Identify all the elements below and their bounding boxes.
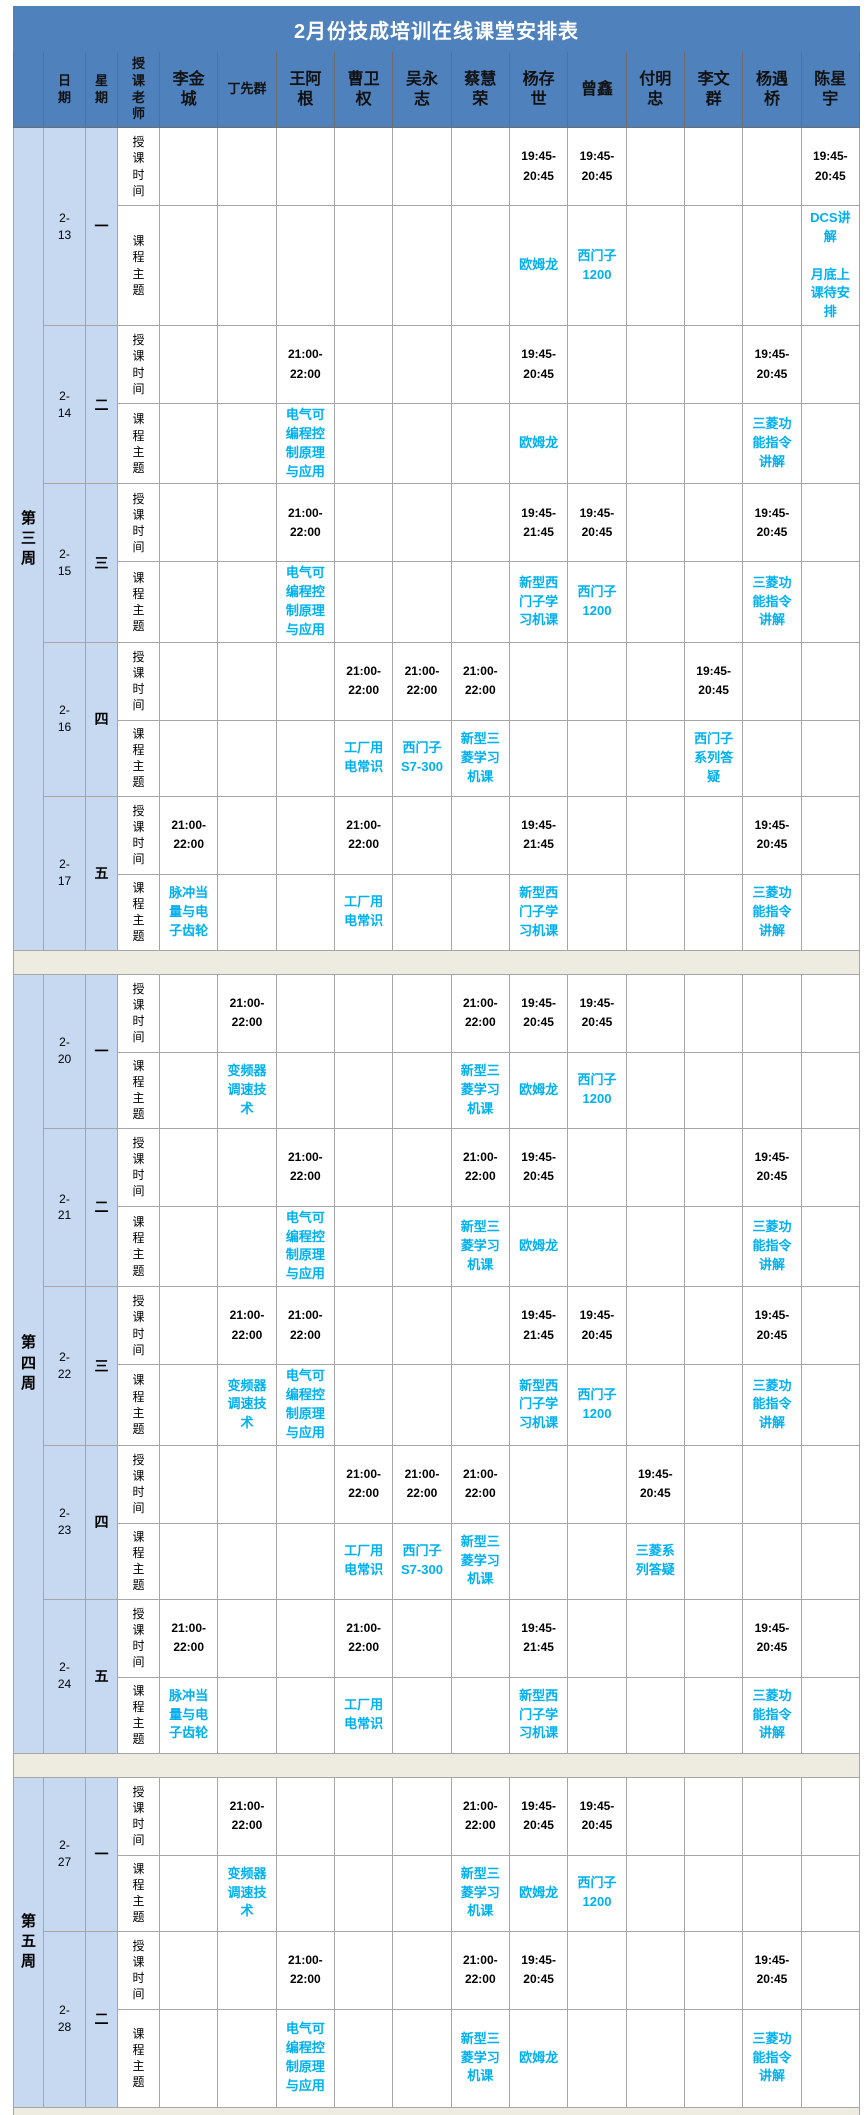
time-row-label: 授课时间 [118, 326, 160, 404]
topic-row-label: 课程主题 [118, 404, 160, 484]
time-cell [218, 1599, 276, 1677]
date-cell: 2-22 [44, 1287, 86, 1445]
time-cell [743, 974, 801, 1052]
topic-cell [218, 1677, 276, 1753]
topic-row: 课程主题电气可编程控制原理与应用新型三菱学习机课欧姆龙三菱功能指令讲解 [14, 1206, 860, 1286]
time-row: 2-15三授课时间21:00-22:0019:45-21:4519:45-20:… [14, 484, 860, 562]
time-cell: 19:45-20:45 [801, 128, 859, 206]
time-cell [684, 1599, 742, 1677]
topic-cell: 新型西门子学习机课 [509, 562, 567, 642]
time-cell [684, 128, 742, 206]
topic-cell [626, 1677, 684, 1753]
date-cell: 2-15 [44, 484, 86, 642]
time-cell: 21:00-22:00 [276, 1287, 334, 1365]
time-row-label: 授课时间 [118, 1445, 160, 1523]
topic-cell [334, 404, 392, 484]
topic-row: 课程主题电气可编程控制原理与应用欧姆龙三菱功能指令讲解 [14, 404, 860, 484]
time-cell: 21:00-22:00 [451, 1128, 509, 1206]
topic-cell [684, 206, 742, 326]
topic-cell [509, 1523, 567, 1599]
time-cell [801, 796, 859, 874]
topic-cell [801, 1523, 859, 1599]
time-row: 第三周2-13一授课时间19:45-20:4519:45-20:4519:45-… [14, 128, 860, 206]
topic-cell [334, 1206, 392, 1286]
teacher-header: 付明忠 [626, 52, 684, 128]
topic-cell [684, 2009, 742, 2107]
time-cell: 19:45-20:45 [509, 1931, 567, 2009]
topic-cell [393, 1206, 451, 1286]
topic-cell [276, 874, 334, 950]
topic-row: 课程主题脉冲当量与电子齿轮工厂用电常识新型西门子学习机课三菱功能指令讲解 [14, 874, 860, 950]
time-cell: 21:00-22:00 [276, 484, 334, 562]
time-cell [743, 1445, 801, 1523]
topic-row-label: 课程主题 [118, 1365, 160, 1445]
time-row-label: 授课时间 [118, 1599, 160, 1677]
topic-cell [568, 1523, 626, 1599]
time-cell [451, 484, 509, 562]
time-row: 2-14二授课时间21:00-22:0019:45-20:4519:45-20:… [14, 326, 860, 404]
topic-row-label: 课程主题 [118, 1855, 160, 1931]
topic-cell: 电气可编程控制原理与应用 [276, 1365, 334, 1445]
time-cell [393, 1777, 451, 1855]
time-cell [276, 128, 334, 206]
time-cell: 19:45-20:45 [743, 1931, 801, 2009]
weekday-cell: 四 [86, 642, 118, 796]
topic-row: 课程主题电气可编程控制原理与应用新型西门子学习机课西门子1200三菱功能指令讲解 [14, 562, 860, 642]
topic-cell [218, 720, 276, 796]
week-separator [14, 1753, 860, 1777]
time-cell: 21:00-22:00 [218, 974, 276, 1052]
time-row-label: 授课时间 [118, 1777, 160, 1855]
time-cell [393, 1287, 451, 1365]
time-cell [451, 128, 509, 206]
date-cell: 2-20 [44, 974, 86, 1128]
topic-cell: 工厂用电常识 [334, 720, 392, 796]
topic-cell [218, 874, 276, 950]
topic-cell [160, 720, 218, 796]
date-cell: 2-14 [44, 326, 86, 484]
time-cell [393, 128, 451, 206]
time-cell: 19:45-20:45 [509, 1128, 567, 1206]
time-cell: 19:45-20:45 [626, 1445, 684, 1523]
topic-row: 课程主题变频器调速技术新型三菱学习机课欧姆龙西门子1200 [14, 1052, 860, 1128]
time-row: 2-28二授课时间21:00-22:0021:00-22:0019:45-20:… [14, 1931, 860, 2009]
time-cell: 19:45-20:45 [743, 484, 801, 562]
time-cell: 21:00-22:00 [393, 642, 451, 720]
topic-cell [276, 1523, 334, 1599]
teacher-label-header: 授课老师 [118, 52, 160, 128]
topic-row-label: 课程主题 [118, 2009, 160, 2107]
topic-cell [626, 1052, 684, 1128]
time-cell: 21:00-22:00 [160, 1599, 218, 1677]
topic-cell [393, 874, 451, 950]
topic-cell: 三菱功能指令讲解 [743, 404, 801, 484]
topic-cell: 电气可编程控制原理与应用 [276, 1206, 334, 1286]
date-cell: 2-27 [44, 1777, 86, 1931]
topic-cell: 新型三菱学习机课 [451, 1206, 509, 1286]
topic-cell: 西门子1200 [568, 562, 626, 642]
topic-cell [743, 1052, 801, 1128]
time-cell [509, 1445, 567, 1523]
topic-cell: 变频器调速技术 [218, 1855, 276, 1931]
topic-row: 课程主题工厂用电常识西门子S7-300新型三菱学习机课西门子系列答疑 [14, 720, 860, 796]
weekday-cell: 三 [86, 484, 118, 642]
schedule-table: 2月份技成培训在线课堂安排表 日期 星期 授课老师 李金城丁先群王阿根曹卫权吴永… [13, 6, 860, 2115]
time-cell [334, 1287, 392, 1365]
time-cell [393, 1599, 451, 1677]
time-cell: 21:00-22:00 [218, 1777, 276, 1855]
time-cell [218, 128, 276, 206]
time-cell: 19:45-20:45 [568, 1777, 626, 1855]
topic-cell [684, 1365, 742, 1445]
teacher-header: 曾鑫 [568, 52, 626, 128]
topic-cell [276, 1677, 334, 1753]
topic-cell [684, 1052, 742, 1128]
time-cell: 19:45-21:45 [509, 1287, 567, 1365]
topic-cell: 西门子1200 [568, 1052, 626, 1128]
time-cell: 19:45-20:45 [568, 974, 626, 1052]
topic-cell: 工厂用电常识 [334, 874, 392, 950]
time-cell [801, 326, 859, 404]
time-cell: 19:45-21:45 [509, 484, 567, 562]
teacher-header: 杨遇桥 [743, 52, 801, 128]
time-cell [801, 1287, 859, 1365]
time-cell [801, 1599, 859, 1677]
time-cell [626, 1287, 684, 1365]
time-row-label: 授课时间 [118, 1287, 160, 1365]
time-cell: 19:45-20:45 [684, 642, 742, 720]
time-cell [626, 1931, 684, 2009]
topic-cell: 西门子S7-300 [393, 1523, 451, 1599]
topic-row-label: 课程主题 [118, 874, 160, 950]
time-cell: 19:45-21:45 [509, 1599, 567, 1677]
topic-cell: 脉冲当量与电子齿轮 [160, 1677, 218, 1753]
topic-cell [801, 404, 859, 484]
teacher-header: 吴永志 [393, 52, 451, 128]
topic-cell [276, 206, 334, 326]
topic-cell: 西门子系列答疑 [684, 720, 742, 796]
time-cell [801, 1128, 859, 1206]
topic-cell [684, 1523, 742, 1599]
topic-cell [568, 404, 626, 484]
topic-cell: 欧姆龙 [509, 1855, 567, 1931]
time-cell [160, 1287, 218, 1365]
time-cell [568, 1931, 626, 2009]
time-row: 2-23四授课时间21:00-22:0021:00-22:0021:00-22:… [14, 1445, 860, 1523]
time-cell [451, 326, 509, 404]
topic-cell: 三菱系列答疑 [626, 1523, 684, 1599]
date-cell: 2-13 [44, 128, 86, 326]
time-cell [684, 796, 742, 874]
time-cell [568, 1445, 626, 1523]
topic-cell [451, 1677, 509, 1753]
time-cell [393, 326, 451, 404]
topic-cell: 三菱功能指令讲解 [743, 874, 801, 950]
page-title: 2月份技成培训在线课堂安排表 [14, 7, 860, 52]
time-cell [626, 1128, 684, 1206]
topic-cell: 脉冲当量与电子齿轮 [160, 874, 218, 950]
topic-cell [218, 1523, 276, 1599]
time-cell: 21:00-22:00 [334, 1445, 392, 1523]
week-separator-row [14, 950, 860, 974]
time-cell [451, 1599, 509, 1677]
time-cell: 19:45-20:45 [743, 1128, 801, 1206]
topic-cell [334, 206, 392, 326]
time-cell: 21:00-22:00 [276, 1128, 334, 1206]
topic-cell [160, 1206, 218, 1286]
topic-cell [684, 1855, 742, 1931]
time-cell [626, 326, 684, 404]
topic-cell [626, 562, 684, 642]
topic-cell: 新型西门子学习机课 [509, 1365, 567, 1445]
weekday-column-header: 星期 [86, 52, 118, 128]
header-row: 日期 星期 授课老师 李金城丁先群王阿根曹卫权吴永志蔡慧荣杨存世曾鑫付明忠李文群… [14, 52, 860, 128]
topic-cell: 三菱功能指令讲解 [743, 1677, 801, 1753]
time-row-label: 授课时间 [118, 1128, 160, 1206]
weekday-cell: 一 [86, 974, 118, 1128]
topic-cell: 欧姆龙 [509, 1206, 567, 1286]
topic-cell [334, 1365, 392, 1445]
topic-cell [218, 562, 276, 642]
time-row: 2-24五授课时间21:00-22:0021:00-22:0019:45-21:… [14, 1599, 860, 1677]
time-cell [393, 1931, 451, 2009]
date-cell: 2-21 [44, 1128, 86, 1286]
time-cell [276, 974, 334, 1052]
topic-cell [160, 206, 218, 326]
time-cell: 21:00-22:00 [451, 1777, 509, 1855]
time-cell [218, 1445, 276, 1523]
topic-cell [626, 720, 684, 796]
topic-cell [626, 1365, 684, 1445]
topic-cell: 电气可编程控制原理与应用 [276, 562, 334, 642]
time-cell [218, 1128, 276, 1206]
time-cell: 21:00-22:00 [160, 796, 218, 874]
time-cell [801, 1445, 859, 1523]
time-cell [334, 1128, 392, 1206]
topic-cell [160, 404, 218, 484]
time-cell [218, 642, 276, 720]
topic-cell: 欧姆龙 [509, 404, 567, 484]
topic-cell [393, 1677, 451, 1753]
topic-row-label: 课程主题 [118, 206, 160, 326]
time-cell: 21:00-22:00 [451, 1445, 509, 1523]
time-cell [160, 1128, 218, 1206]
time-cell [626, 484, 684, 562]
time-cell: 21:00-22:00 [334, 642, 392, 720]
time-cell [451, 796, 509, 874]
time-cell: 21:00-22:00 [451, 974, 509, 1052]
time-cell [801, 484, 859, 562]
topic-cell [743, 1523, 801, 1599]
topic-cell [801, 2009, 859, 2107]
topic-cell: 工厂用电常识 [334, 1677, 392, 1753]
time-cell [276, 1777, 334, 1855]
topic-row: 课程主题脉冲当量与电子齿轮工厂用电常识新型西门子学习机课三菱功能指令讲解 [14, 1677, 860, 1753]
date-cell: 2-17 [44, 796, 86, 950]
teacher-header: 曹卫权 [334, 52, 392, 128]
topic-cell [160, 1855, 218, 1931]
teacher-header: 王阿根 [276, 52, 334, 128]
topic-cell: 新型三菱学习机课 [451, 2009, 509, 2107]
topic-cell [393, 1365, 451, 1445]
time-cell [276, 642, 334, 720]
time-cell [393, 974, 451, 1052]
topic-cell [568, 2009, 626, 2107]
topic-cell [684, 562, 742, 642]
time-cell [684, 1128, 742, 1206]
time-cell: 21:00-22:00 [393, 1445, 451, 1523]
topic-row: 课程主题变频器调速技术新型三菱学习机课欧姆龙西门子1200 [14, 1855, 860, 1931]
time-cell: 19:45-20:45 [743, 796, 801, 874]
topic-cell: 新型西门子学习机课 [509, 1677, 567, 1753]
time-cell [626, 974, 684, 1052]
topic-cell [393, 2009, 451, 2107]
topic-row: 课程主题变频器调速技术电气可编程控制原理与应用新型西门子学习机课西门子1200三… [14, 1365, 860, 1445]
topic-cell [160, 1052, 218, 1128]
topic-cell [626, 206, 684, 326]
date-cell: 2-23 [44, 1445, 86, 1599]
topic-cell [393, 404, 451, 484]
time-cell: 19:45-20:45 [568, 484, 626, 562]
time-row: 2-17五授课时间21:00-22:0021:00-22:0019:45-21:… [14, 796, 860, 874]
topic-cell: 电气可编程控制原理与应用 [276, 404, 334, 484]
teacher-header: 蔡慧荣 [451, 52, 509, 128]
date-cell: 2-16 [44, 642, 86, 796]
time-cell: 21:00-22:00 [451, 642, 509, 720]
topic-row: 课程主题工厂用电常识西门子S7-300新型三菱学习机课三菱系列答疑 [14, 1523, 860, 1599]
time-cell: 19:45-20:45 [743, 326, 801, 404]
topic-cell [801, 1677, 859, 1753]
topic-cell [160, 1523, 218, 1599]
topic-cell [626, 1855, 684, 1931]
time-cell [568, 1128, 626, 1206]
time-cell: 19:45-20:45 [568, 128, 626, 206]
time-cell: 21:00-22:00 [276, 1931, 334, 2009]
topic-cell [684, 404, 742, 484]
topic-cell [276, 720, 334, 796]
topic-cell: 变频器调速技术 [218, 1052, 276, 1128]
topic-cell [451, 874, 509, 950]
topic-cell [218, 2009, 276, 2107]
teacher-header: 陈星宇 [801, 52, 859, 128]
topic-cell [160, 1365, 218, 1445]
time-cell [801, 1931, 859, 2009]
week-label: 第五周 [14, 1777, 44, 2107]
topic-cell [568, 720, 626, 796]
time-cell [684, 1287, 742, 1365]
topic-cell [684, 874, 742, 950]
topic-cell: 欧姆龙 [509, 2009, 567, 2107]
time-cell [160, 128, 218, 206]
topic-cell: 新型三菱学习机课 [451, 1052, 509, 1128]
weekday-cell: 五 [86, 796, 118, 950]
corner-cell [14, 52, 44, 128]
time-cell [801, 642, 859, 720]
time-cell [393, 484, 451, 562]
time-cell [276, 1599, 334, 1677]
topic-cell [334, 2009, 392, 2107]
schedule-page: 2月份技成培训在线课堂安排表 日期 星期 授课老师 李金城丁先群王阿根曹卫权吴永… [0, 0, 868, 2115]
time-cell [334, 974, 392, 1052]
topic-row-label: 课程主题 [118, 1677, 160, 1753]
time-row-label: 授课时间 [118, 1931, 160, 2009]
teacher-header: 丁先群 [218, 52, 276, 128]
time-cell: 21:00-22:00 [334, 796, 392, 874]
time-cell: 21:00-22:00 [276, 326, 334, 404]
week-separator-row [14, 1753, 860, 1777]
topic-cell [160, 562, 218, 642]
topic-cell [568, 1677, 626, 1753]
topic-cell [334, 1855, 392, 1931]
topic-row-label: 课程主题 [118, 562, 160, 642]
week-separator [14, 2107, 860, 2115]
time-cell [684, 1445, 742, 1523]
time-cell [334, 1931, 392, 2009]
topic-cell: 三菱功能指令讲解 [743, 562, 801, 642]
topic-cell [393, 1855, 451, 1931]
time-cell: 21:00-22:00 [334, 1599, 392, 1677]
time-cell: 19:45-21:45 [509, 796, 567, 874]
topic-cell [451, 1365, 509, 1445]
topic-cell [626, 404, 684, 484]
topic-cell [743, 720, 801, 796]
time-row: 2-22三授课时间21:00-22:0021:00-22:0019:45-21:… [14, 1287, 860, 1365]
time-row-label: 授课时间 [118, 642, 160, 720]
time-cell [568, 796, 626, 874]
weekday-cell: 二 [86, 1128, 118, 1286]
time-cell [334, 484, 392, 562]
topic-cell: 欧姆龙 [509, 206, 567, 326]
time-cell [626, 796, 684, 874]
time-cell [218, 484, 276, 562]
teacher-header: 李金城 [160, 52, 218, 128]
time-cell [334, 128, 392, 206]
topic-cell: 变频器调速技术 [218, 1365, 276, 1445]
time-cell [218, 326, 276, 404]
topic-cell [801, 1365, 859, 1445]
topic-cell [743, 1855, 801, 1931]
topic-cell [743, 206, 801, 326]
time-cell: 19:45-20:45 [509, 128, 567, 206]
time-cell [801, 974, 859, 1052]
time-cell [160, 1931, 218, 2009]
time-row-label: 授课时间 [118, 796, 160, 874]
week-separator [14, 950, 860, 974]
time-cell [334, 326, 392, 404]
topic-cell: 新型三菱学习机课 [451, 720, 509, 796]
time-cell [684, 326, 742, 404]
topic-cell [801, 1052, 859, 1128]
week-separator-row [14, 2107, 860, 2115]
topic-cell [801, 1206, 859, 1286]
topic-cell [334, 1052, 392, 1128]
topic-cell [626, 2009, 684, 2107]
weekday-cell: 二 [86, 326, 118, 484]
time-row: 第五周2-27一授课时间21:00-22:0021:00-22:0019:45-… [14, 1777, 860, 1855]
time-cell [160, 642, 218, 720]
topic-cell [801, 874, 859, 950]
time-row-label: 授课时间 [118, 128, 160, 206]
time-cell [160, 1445, 218, 1523]
time-row: 第四周2-20一授课时间21:00-22:0021:00-22:0019:45-… [14, 974, 860, 1052]
topic-cell [393, 206, 451, 326]
time-cell [626, 1599, 684, 1677]
time-cell [801, 1777, 859, 1855]
time-cell [218, 1931, 276, 2009]
topic-cell [451, 206, 509, 326]
time-cell [451, 1287, 509, 1365]
topic-cell: 三菱功能指令讲解 [743, 2009, 801, 2107]
